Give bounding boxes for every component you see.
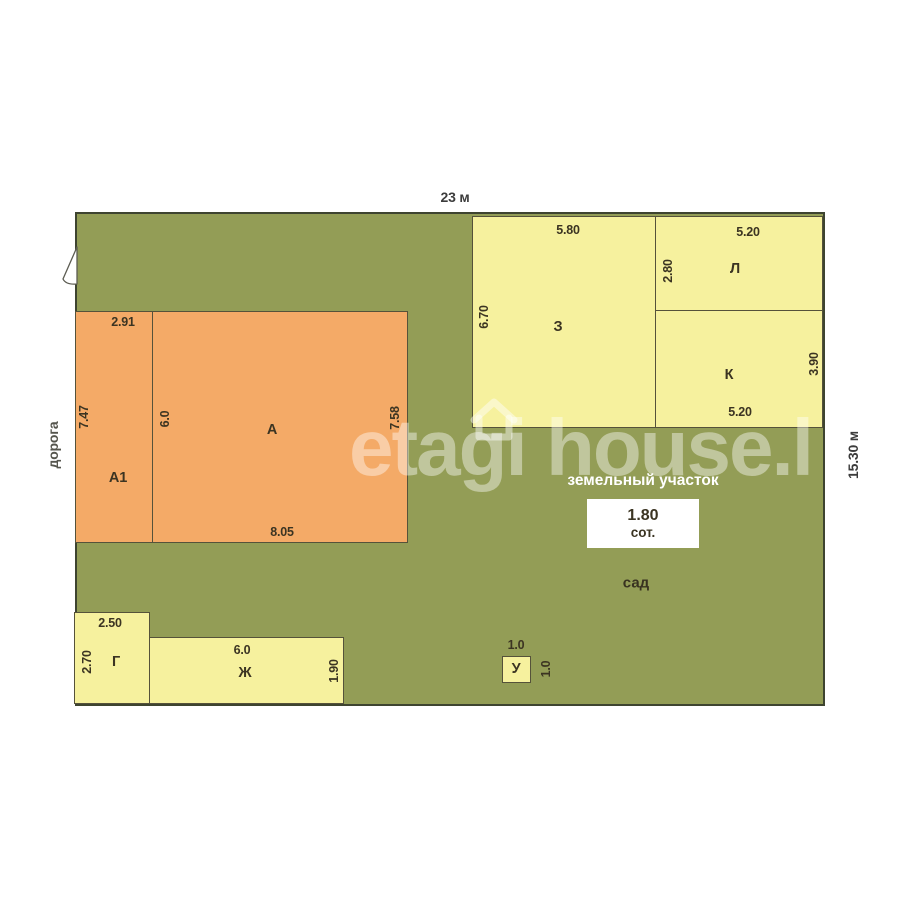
dim-a-right: 7.58: [388, 406, 402, 430]
dim-l-left: 2.80: [661, 259, 675, 283]
label-building-zh: Ж: [239, 665, 252, 681]
dim-a1-left: 7.47: [77, 405, 91, 429]
road-label: дорога: [45, 422, 61, 469]
dim-g-left: 2.70: [80, 650, 94, 674]
area-value: 1.80: [627, 507, 658, 525]
site-plan-canvas: 2.91 7.47 А1 6.0 А 7.58 8.05 5.80 6.70 З…: [0, 0, 900, 900]
label-building-k: К: [725, 367, 734, 383]
label-building-g: Г: [112, 654, 120, 670]
building-z-rect: [472, 216, 656, 428]
dim-zh-top: 6.0: [234, 643, 251, 657]
label-building-a: А: [267, 422, 277, 438]
label-building-z: З: [554, 319, 563, 335]
label-building-u: У: [512, 661, 521, 677]
label-building-l: Л: [730, 261, 740, 277]
garden-label: сад: [623, 575, 649, 592]
building-a-rect: [152, 311, 408, 543]
dim-u-right: 1.0: [539, 661, 553, 678]
land-plot-caption: земельный участок: [567, 472, 718, 490]
plot-width-label: 23 м: [440, 189, 469, 205]
dim-a1-top: 2.91: [111, 315, 135, 329]
dim-z-top: 5.80: [556, 223, 580, 237]
area-unit: сот.: [631, 525, 656, 541]
dim-k-bottom: 5.20: [728, 405, 752, 419]
dim-zh-right: 1.90: [327, 659, 341, 683]
dim-u-top: 1.0: [508, 638, 525, 652]
dim-g-top: 2.50: [98, 616, 122, 630]
label-building-a1: А1: [109, 470, 127, 486]
area-info-box: 1.80 сот.: [587, 499, 699, 548]
dim-k-right: 3.90: [807, 352, 821, 376]
dim-z-left: 6.70: [477, 305, 491, 329]
dim-a-left: 6.0: [158, 411, 172, 428]
gate-entrance-icon: [58, 240, 84, 292]
plot-height-label: 15.30 м: [845, 431, 861, 479]
dim-a-bottom: 8.05: [270, 525, 294, 539]
dim-l-top: 5.20: [736, 225, 760, 239]
